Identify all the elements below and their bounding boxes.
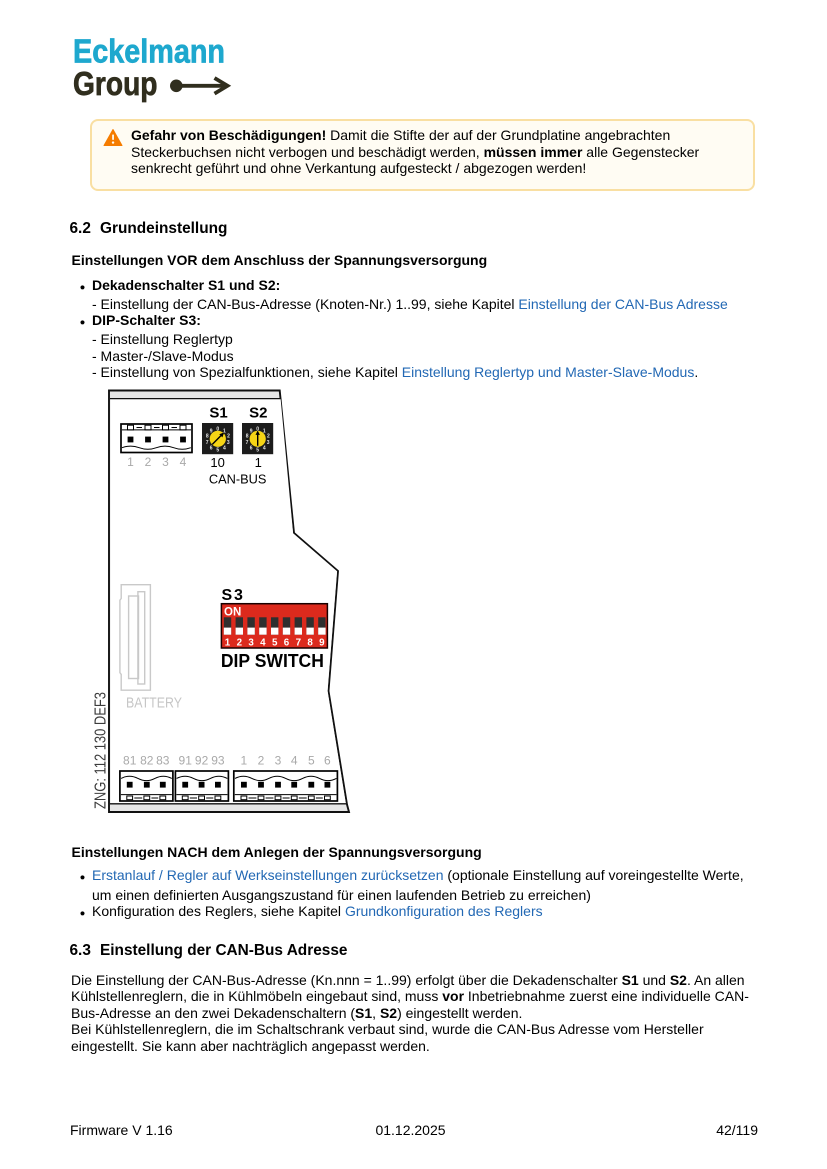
svg-text:8: 8: [307, 638, 313, 649]
svg-text:1: 1: [225, 638, 231, 649]
svg-text:93: 93: [211, 753, 225, 767]
svg-text:1: 1: [127, 455, 134, 469]
svg-text:S1: S1: [209, 404, 227, 421]
svg-text:DIP SWITCH: DIP SWITCH: [221, 651, 324, 671]
svg-text:S2: S2: [249, 404, 267, 421]
svg-text:8: 8: [246, 434, 249, 440]
svg-text:2: 2: [145, 455, 152, 469]
svg-text:83: 83: [156, 753, 170, 767]
svg-text:2: 2: [258, 753, 265, 767]
svg-text:4: 4: [291, 753, 298, 767]
svg-text:6: 6: [210, 446, 213, 452]
svg-text:CAN-BUS: CAN-BUS: [209, 472, 267, 487]
svg-text:5: 5: [216, 448, 219, 454]
svg-text:9: 9: [319, 638, 325, 649]
svg-text:4: 4: [263, 446, 266, 452]
svg-text:91: 91: [179, 753, 193, 767]
svg-text:81: 81: [123, 753, 137, 767]
svg-text:ZNG: 112 130 DEF3: ZNG: 112 130 DEF3: [93, 692, 110, 809]
svg-text:6: 6: [324, 753, 331, 767]
svg-text:3: 3: [275, 753, 282, 767]
svg-text:S3: S3: [222, 587, 245, 604]
svg-text:4: 4: [223, 446, 226, 452]
svg-text:82: 82: [140, 753, 154, 767]
svg-text:4: 4: [260, 638, 266, 649]
svg-text:10: 10: [210, 455, 224, 470]
svg-text:6: 6: [284, 638, 290, 649]
svg-text:7: 7: [246, 440, 249, 446]
svg-text:7: 7: [296, 638, 302, 649]
svg-text:0: 0: [216, 426, 219, 432]
svg-text:2: 2: [237, 638, 243, 649]
svg-text:2: 2: [227, 434, 230, 440]
svg-text:ON: ON: [224, 607, 241, 619]
svg-text:9: 9: [210, 428, 213, 434]
svg-text:BATTERY: BATTERY: [126, 695, 182, 712]
svg-text:3: 3: [267, 440, 270, 446]
svg-text:92: 92: [195, 753, 209, 767]
svg-text:1: 1: [255, 455, 262, 470]
svg-text:1: 1: [263, 428, 266, 434]
svg-text:7: 7: [206, 440, 209, 446]
svg-text:1: 1: [241, 753, 248, 767]
svg-text:5: 5: [308, 753, 315, 767]
svg-text:3: 3: [162, 455, 169, 469]
svg-text:2: 2: [267, 434, 270, 440]
svg-text:3: 3: [248, 638, 254, 649]
svg-text:5: 5: [272, 638, 278, 649]
svg-text:Group: Group: [73, 65, 158, 102]
svg-text:3: 3: [227, 440, 230, 446]
svg-text:5: 5: [256, 448, 259, 454]
svg-text:6: 6: [250, 446, 253, 452]
svg-text:8: 8: [206, 434, 209, 440]
svg-text:9: 9: [250, 428, 253, 434]
svg-text:4: 4: [180, 455, 187, 469]
